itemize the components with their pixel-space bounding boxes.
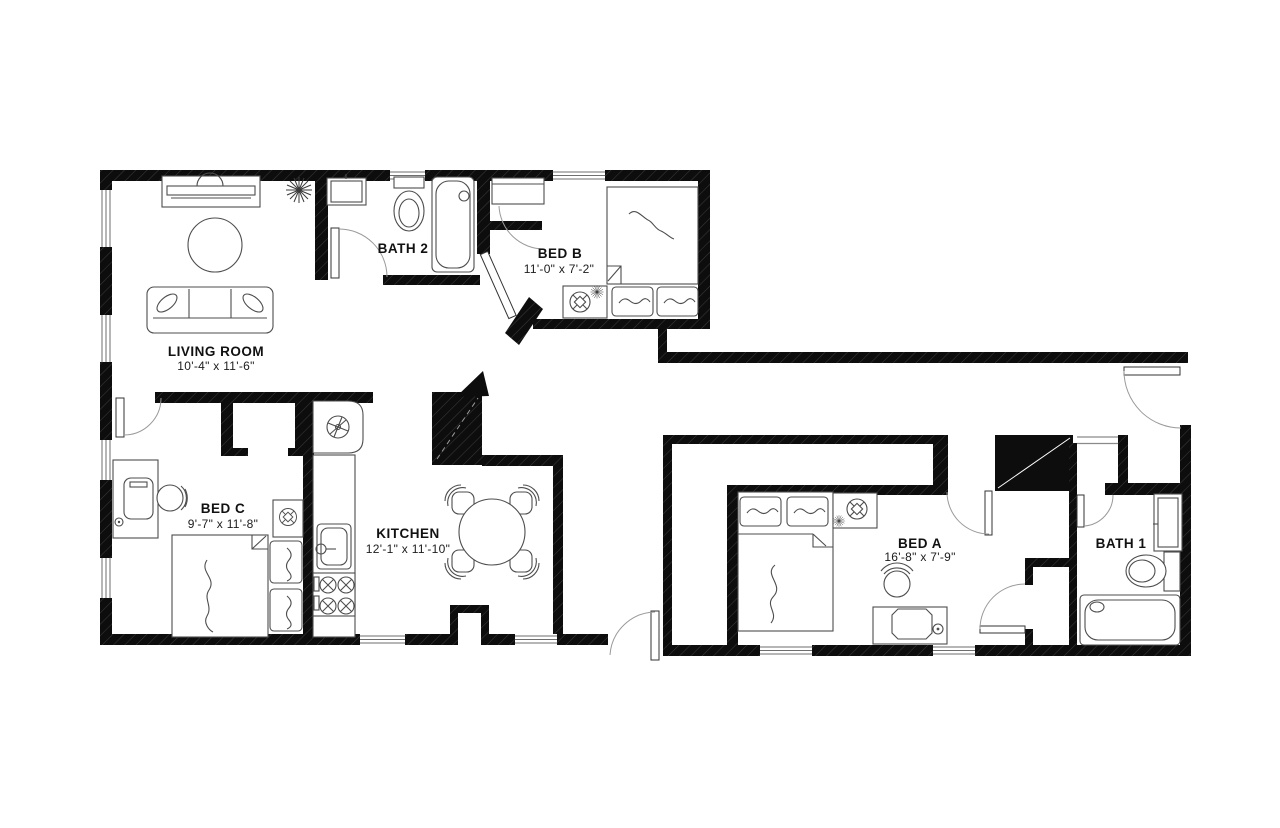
pillow — [612, 287, 653, 316]
door-bath-1 — [1077, 495, 1113, 527]
room-dimensions-living-room: 10'-4" x 11'-6" — [177, 359, 254, 373]
window — [515, 634, 557, 645]
pillow — [787, 497, 828, 526]
floor-plan-page: LIVING ROOM 10'-4" x 11'-6" BATH 2 BED B… — [0, 0, 1280, 828]
room-dimensions-bed-a: 16'-8" x 7'-9" — [884, 550, 955, 564]
bath-2-fixtures — [327, 174, 474, 272]
window — [100, 315, 112, 362]
fridge — [313, 401, 363, 453]
desk — [873, 607, 947, 644]
closet-bed-b — [492, 178, 544, 204]
window — [100, 440, 112, 480]
tv-console — [162, 173, 260, 207]
window — [933, 645, 975, 656]
nightstand — [563, 286, 607, 319]
room-dimensions-bed-b: 11'-0" x 7'-2" — [524, 262, 594, 276]
pillow — [270, 589, 302, 631]
floor-plan: LIVING ROOM 10'-4" x 11'-6" BATH 2 BED B… — [0, 0, 1280, 828]
cased-opening — [1077, 437, 1118, 444]
window — [360, 634, 405, 645]
room-label-bed-a: BED A — [898, 536, 942, 551]
desk-chair — [157, 485, 187, 511]
window — [553, 170, 605, 181]
room-label-bath-1: BATH 1 — [1096, 536, 1147, 551]
desk-chair — [881, 563, 913, 597]
bed-b-furniture — [492, 178, 698, 318]
black-closet — [995, 435, 1073, 491]
wall-niche — [450, 605, 489, 645]
nightstand — [273, 500, 303, 537]
room-label-bath-2: BATH 2 — [378, 241, 429, 256]
bathtub — [432, 177, 474, 272]
window — [100, 190, 112, 247]
room-dimensions-bed-c: 9'-7" x 11'-8" — [188, 517, 258, 531]
living-room-furniture — [147, 173, 312, 333]
nightstand — [833, 493, 877, 528]
room-label-kitchen: KITCHEN — [376, 526, 440, 541]
entry-door-south — [610, 611, 659, 660]
bathtub — [1080, 595, 1180, 645]
coffee-table — [188, 218, 242, 272]
desk — [113, 460, 158, 538]
kitchen-fixtures — [313, 401, 539, 637]
room-label-bed-c: BED C — [201, 501, 246, 516]
bed — [172, 535, 302, 637]
toilet — [1126, 552, 1180, 591]
entry-door-east — [1124, 367, 1181, 428]
door-bed-b — [480, 251, 516, 318]
window — [100, 558, 112, 598]
dining-table — [459, 499, 525, 565]
room-label-living-room: LIVING ROOM — [168, 344, 264, 359]
bath-1-fixtures — [1080, 494, 1182, 645]
bed-a-furniture — [738, 492, 947, 644]
window — [760, 645, 812, 656]
room-dimensions-kitchen: 12'-1" x 11'-10" — [366, 542, 450, 556]
pillow — [657, 287, 698, 316]
bed — [607, 187, 698, 316]
toilet — [394, 177, 424, 231]
kitchen-sink — [316, 524, 351, 569]
pillow — [740, 497, 781, 526]
door-bed-c — [116, 398, 161, 437]
door-bed-a — [947, 491, 992, 535]
shaft — [432, 371, 489, 465]
vanity-sink — [327, 174, 366, 205]
door-closet-bed-a — [980, 584, 1025, 633]
sofa — [147, 287, 273, 333]
bed-c-furniture — [113, 460, 303, 637]
pillow — [270, 541, 302, 583]
bed — [738, 492, 833, 631]
dining-table-set — [445, 485, 539, 579]
vanity-cabinet — [1153, 494, 1182, 551]
stove — [313, 573, 355, 616]
room-label-bed-b: BED B — [538, 246, 583, 261]
